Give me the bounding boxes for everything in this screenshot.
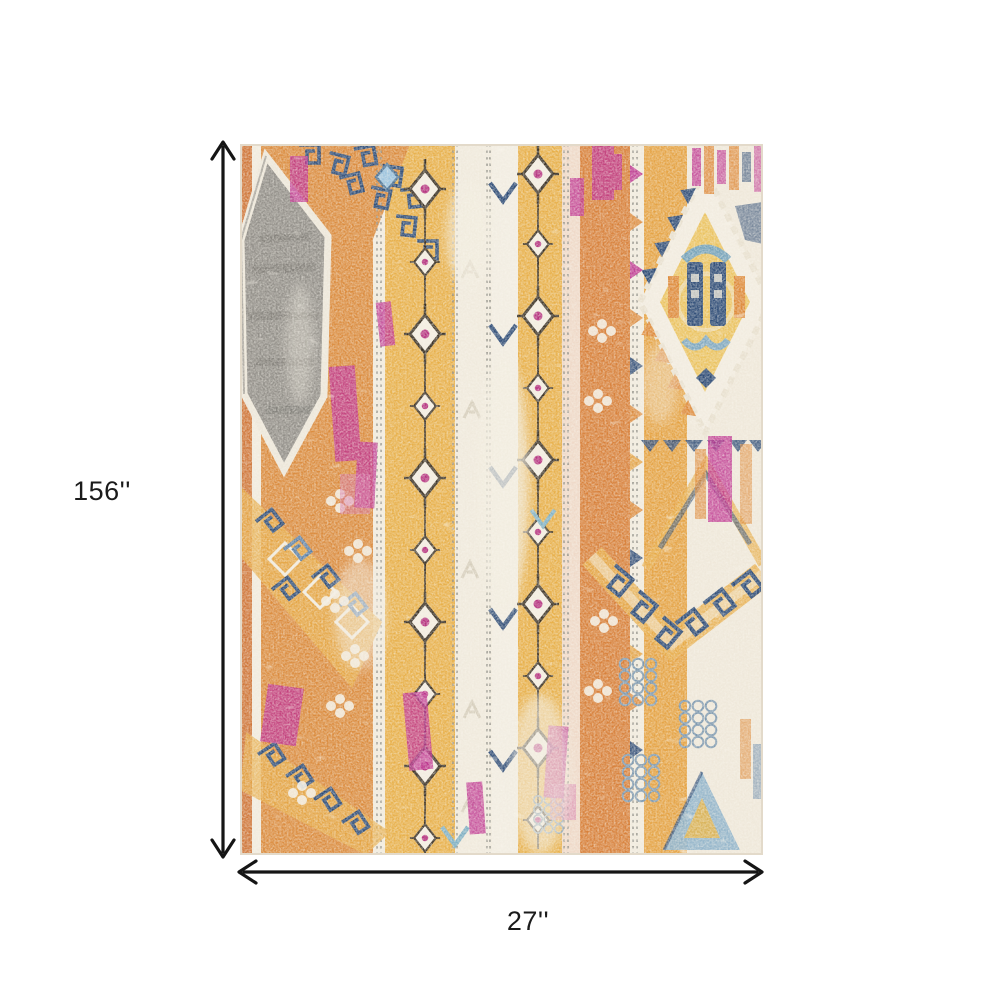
width-dimension-arrow [239, 861, 762, 883]
rug-image [240, 144, 763, 855]
product-image-canvas: 156'' 27'' [0, 0, 1000, 1000]
height-dimension-arrow [212, 142, 234, 857]
width-dimension-label: 27'' [476, 908, 580, 935]
distress-texture [240, 144, 763, 855]
height-dimension-label: 156'' [50, 478, 154, 505]
